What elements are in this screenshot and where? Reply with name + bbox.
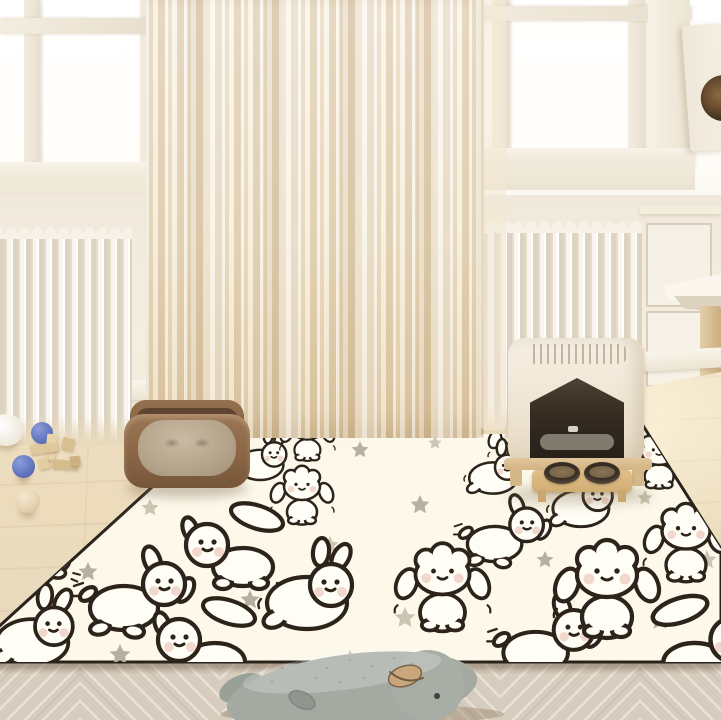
food-bowl [584, 462, 620, 484]
wood-block [37, 457, 50, 470]
food-bowl [544, 462, 580, 484]
radiator-left [0, 238, 132, 444]
pet-bed [124, 400, 250, 500]
wooden-blocks [28, 432, 88, 478]
bowl-food [589, 466, 615, 478]
pet-bed-cushion [138, 420, 236, 476]
litter-box-vents [528, 344, 626, 364]
litter-box-leg [510, 468, 522, 486]
cream-ball [15, 489, 40, 513]
sheer-curtain [146, 0, 484, 438]
litter-bedding [540, 434, 614, 450]
plush-whale [212, 638, 512, 720]
bowl-food [549, 466, 575, 478]
litter-box-leg [632, 468, 644, 486]
puppy-motif [0, 583, 75, 668]
room-scene [0, 0, 721, 720]
stand-leg [538, 490, 546, 502]
feeding-bowls-stand [532, 468, 632, 502]
whale-eye [434, 693, 440, 699]
stand-leg [618, 490, 626, 502]
wood-block [61, 437, 76, 452]
star-motif [703, 461, 720, 477]
wood-block [70, 456, 81, 467]
litter-scoop [568, 426, 578, 432]
star-motif [686, 680, 705, 698]
